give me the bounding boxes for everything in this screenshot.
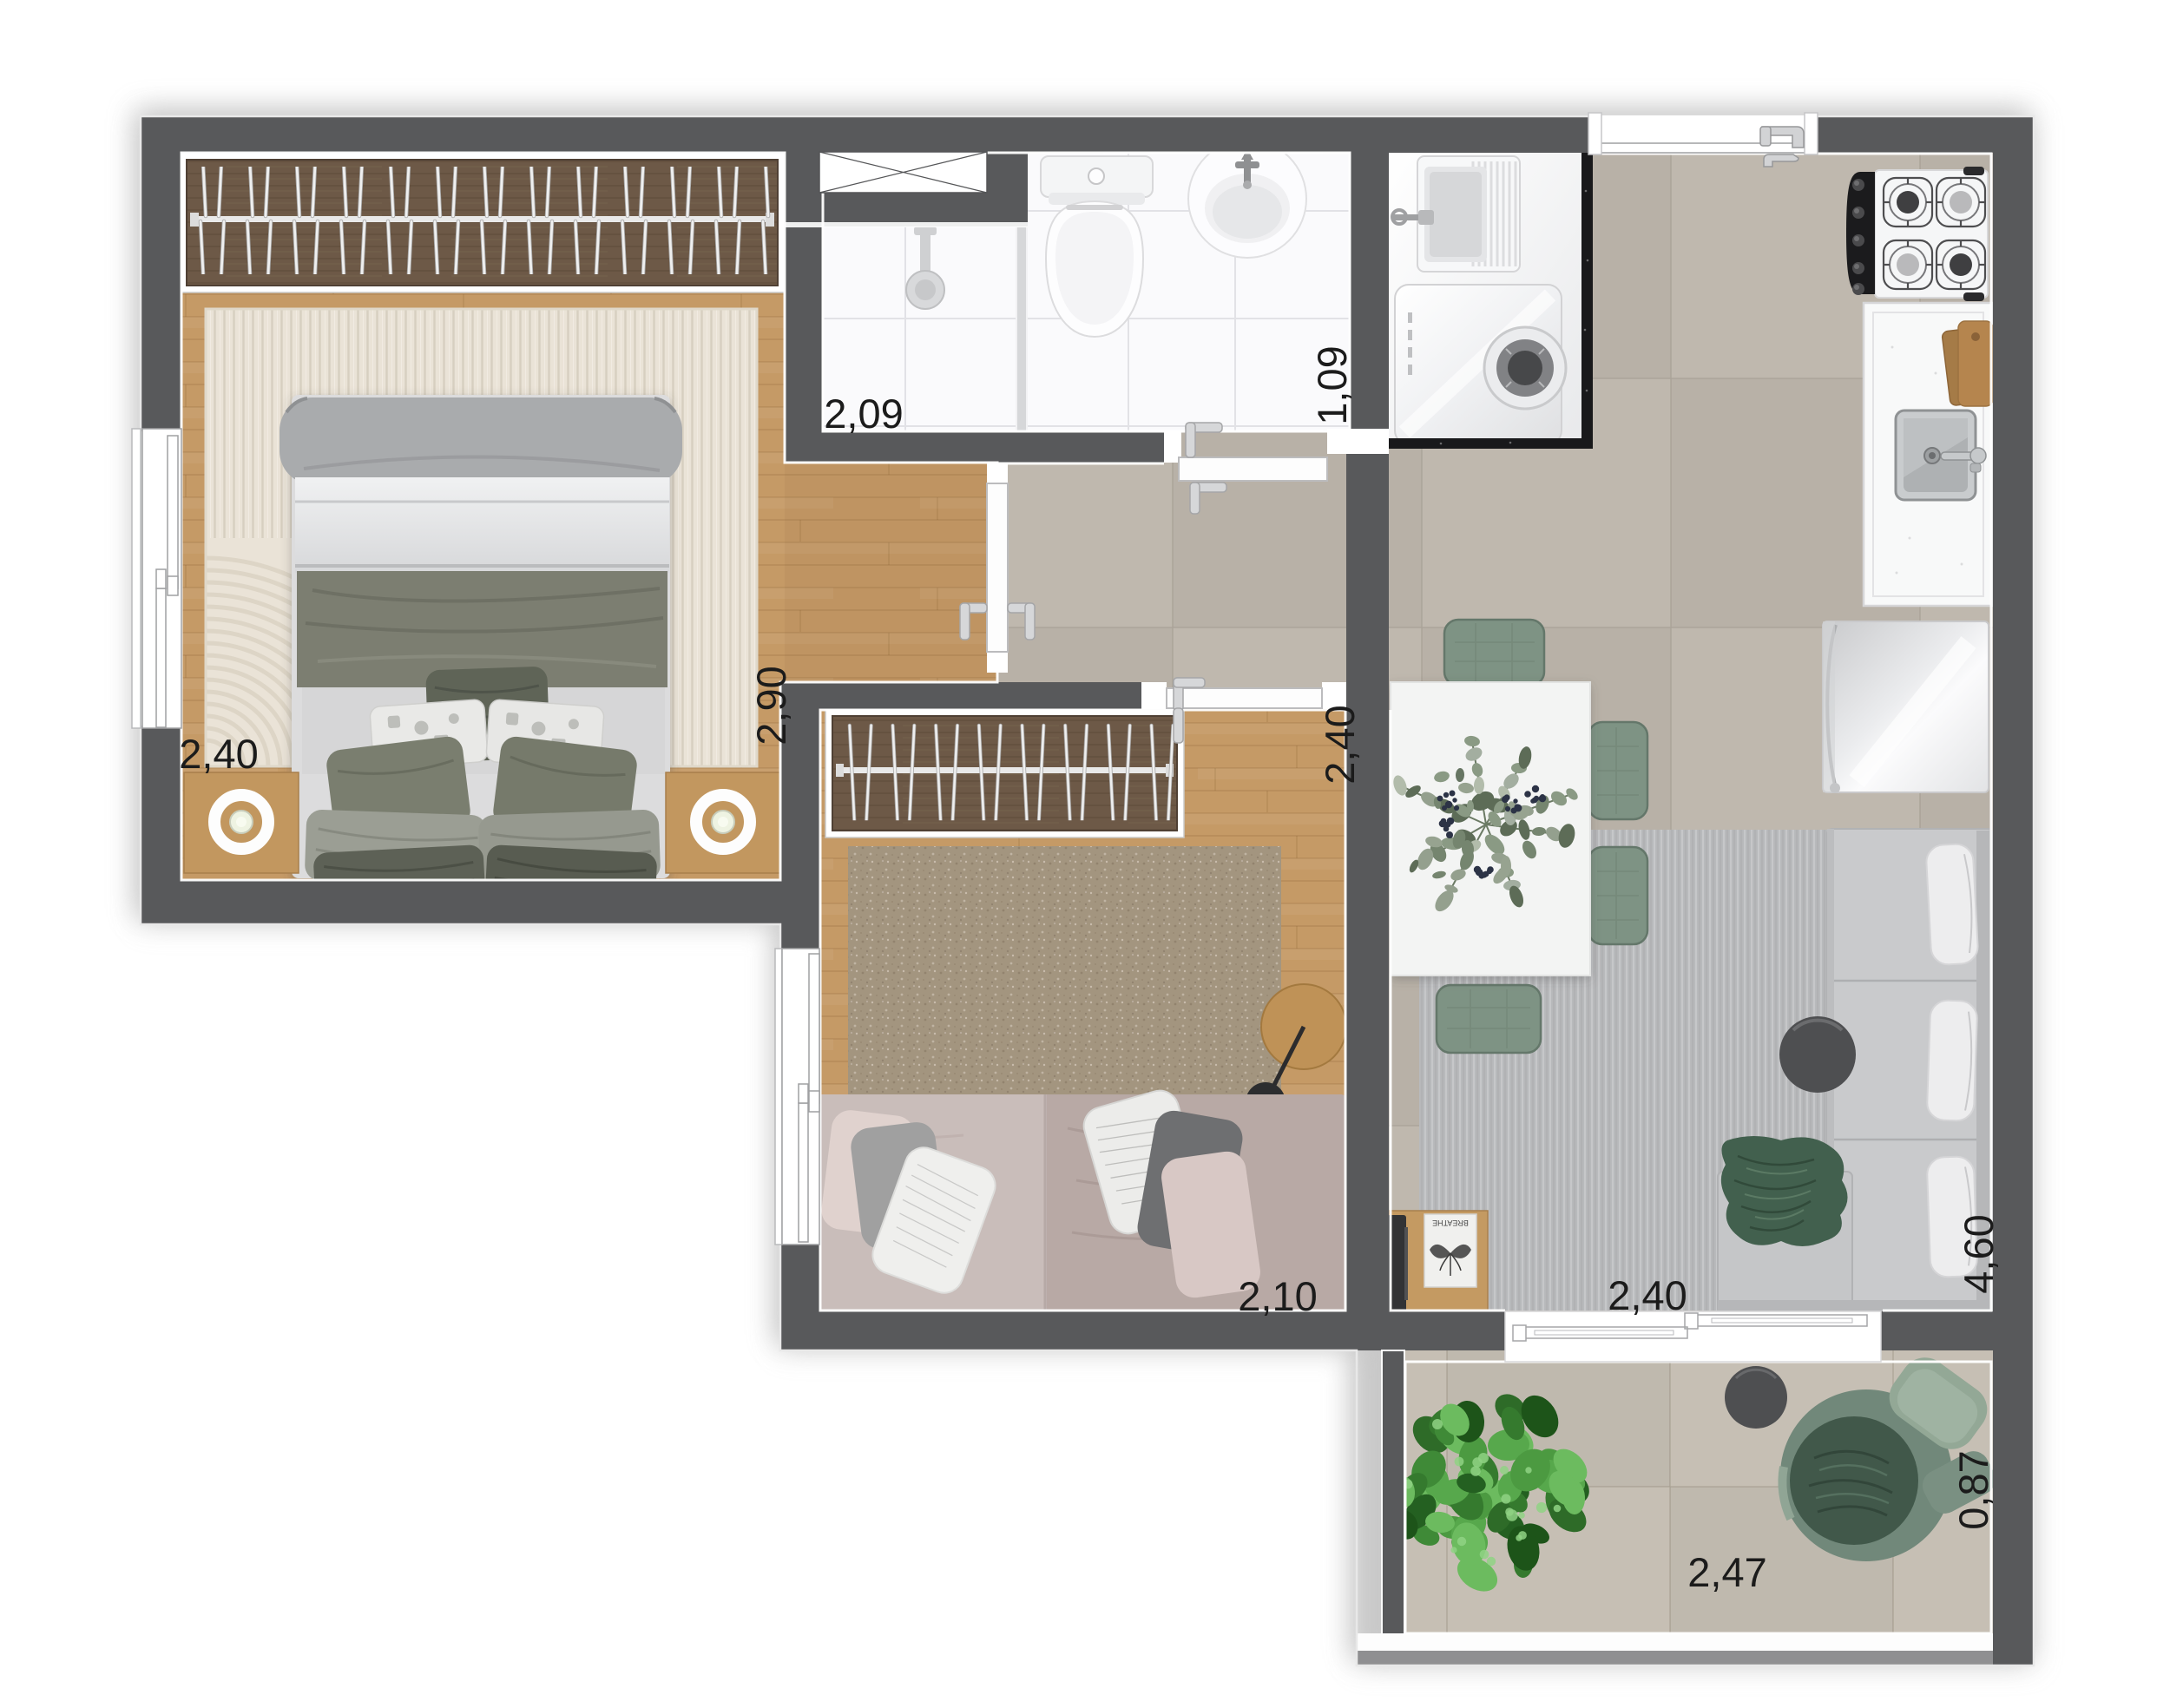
svg-text:2,90: 2,90 (748, 666, 794, 745)
svg-text:2,40: 2,40 (1317, 705, 1363, 784)
svg-text:0,87: 0,87 (1950, 1450, 1996, 1529)
svg-text:2,09: 2,09 (824, 391, 903, 437)
svg-text:BREATHE: BREATHE (1432, 1219, 1469, 1227)
svg-text:2,40: 2,40 (1608, 1272, 1687, 1318)
svg-text:2,10: 2,10 (1238, 1273, 1317, 1319)
svg-text:2,47: 2,47 (1687, 1549, 1766, 1595)
svg-text:1,09: 1,09 (1309, 345, 1355, 424)
svg-text:4,60: 4,60 (1956, 1214, 2002, 1293)
svg-text:2,40: 2,40 (179, 731, 258, 777)
